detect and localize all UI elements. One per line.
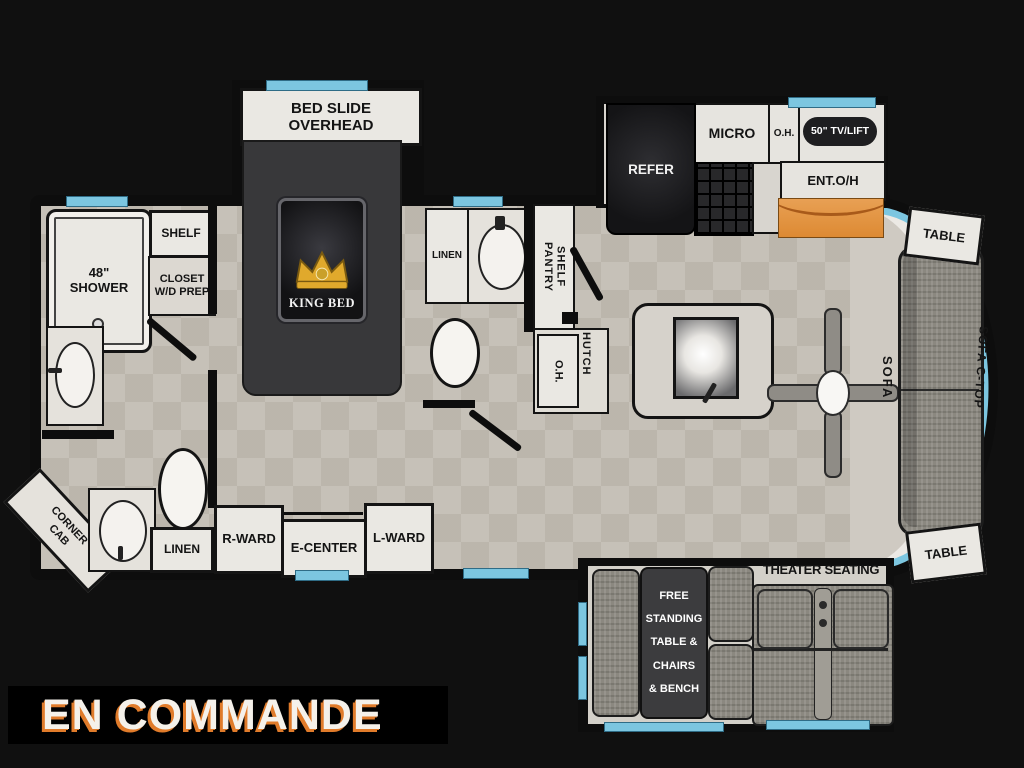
dinette-chair-2 (708, 644, 754, 720)
cupholder-1 (819, 601, 827, 609)
vanity-sink (55, 342, 95, 408)
slide-window-left-1 (578, 602, 587, 646)
fan-blade-bottom (824, 410, 842, 478)
theater-seating-unit (752, 584, 894, 726)
ecenter-wall-line (279, 512, 363, 515)
slide-window-bottom-1 (604, 722, 724, 732)
toilet-front (158, 448, 208, 530)
mid-bath-faucet (495, 216, 505, 230)
table-rear: TABLE (903, 207, 985, 266)
fan-blade-top (824, 308, 842, 376)
island-sink (673, 317, 739, 399)
sofa-label: SOFA (880, 356, 895, 399)
linen-mid: LINEN (425, 208, 469, 304)
front-bath-vanity (46, 326, 104, 426)
hutch-label: HUTCH (580, 332, 592, 408)
sofa (898, 246, 984, 536)
bath-wall-c (42, 430, 114, 439)
kitchen-island (632, 303, 774, 419)
shelf-cabinet: SHELF (149, 210, 213, 258)
tv-lift-label: 50" TV/LIFT (803, 117, 877, 146)
micro-cabinet: MICRO (694, 103, 770, 164)
status-banner: EN COMMANDE (8, 686, 448, 744)
dinette-chair-1 (708, 566, 754, 642)
theater-seating-label: THEATER SEATING (746, 562, 896, 577)
sofa-back (903, 251, 917, 527)
slide-window-left-2 (578, 656, 587, 700)
bed-slide-label: BED SLIDE OVERHEAD (240, 88, 422, 146)
bath-wall-b (208, 370, 217, 508)
counter-arc (778, 198, 884, 216)
dinette-bench (592, 569, 640, 717)
linen-front: LINEN (150, 527, 214, 573)
status-banner-text: EN COMMANDE (42, 691, 383, 740)
hall-wall-stub (423, 400, 475, 408)
entry-window (463, 568, 529, 579)
table-front: TABLE (905, 523, 987, 584)
kitchen-slide-window (788, 97, 876, 108)
theater-headrest-left (757, 589, 813, 649)
refrigerator: REFER (606, 103, 696, 235)
entertainment-counter-orange (778, 198, 884, 238)
vanity-sink-2 (99, 500, 147, 562)
overhead-cabinet-upper: O.H. (768, 103, 800, 164)
king-bed-label: KING BED (289, 296, 355, 311)
mid-bath-window (453, 196, 503, 207)
l-ward-cabinet: L-WARD (364, 503, 434, 574)
overhead-cabinet-mid: O.H. (537, 334, 579, 408)
entertainment-overhead: ENT.O/H (780, 161, 886, 201)
crown-icon (291, 248, 353, 294)
fan-hub (816, 370, 850, 416)
slide-window-bottom-2 (766, 720, 870, 730)
toilet-mid (430, 318, 480, 388)
front-bath-window (66, 196, 128, 207)
king-bed-plaque: KING BED (278, 198, 366, 322)
stove-range (694, 162, 754, 236)
bedroom-window (295, 570, 349, 581)
cupholder-2 (819, 619, 827, 627)
mid-bath-sink (478, 224, 526, 290)
refrigerator-label: REFER (628, 162, 674, 177)
bed-slide-window (266, 80, 368, 91)
tv-lift-cabinet: 50" TV/LIFT (798, 103, 886, 164)
front-bath-vanity-2 (88, 488, 156, 572)
r-ward-cabinet: R-WARD (214, 505, 284, 574)
vanity-faucet-2 (118, 546, 123, 560)
floorplan-canvas: BED SLIDE OVERHEAD KING BED MICRO O.H. 5… (0, 0, 1024, 768)
bath-wall-a (208, 198, 217, 314)
mid-bath-wall (524, 198, 533, 332)
hutch-wall-stub (562, 312, 578, 324)
theater-console (814, 588, 832, 720)
dinette-label: FREE STANDING TABLE & CHAIRS & BENCH (640, 567, 708, 719)
vanity-faucet (48, 368, 62, 373)
theater-headrest-right (833, 589, 889, 649)
closet-wd-prep: CLOSET W/D PREP (148, 256, 216, 316)
